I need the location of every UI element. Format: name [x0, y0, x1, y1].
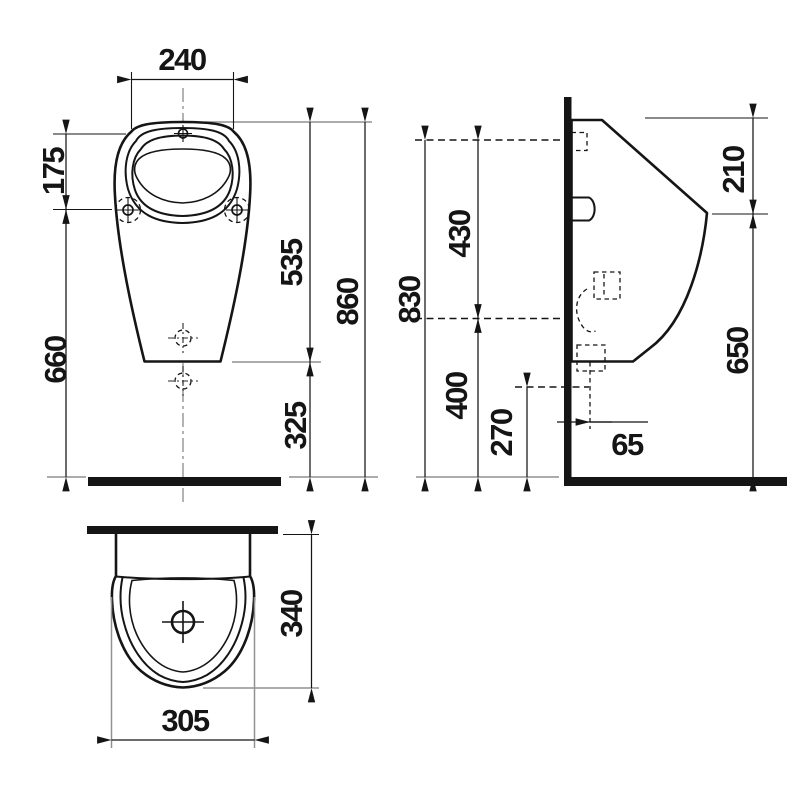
dim-label: 65	[611, 427, 644, 462]
dimension-side-outlet-to-floor: 270	[484, 387, 527, 477]
floor-line	[564, 477, 787, 486]
dimension-front-rim-to-holes: 175	[36, 134, 126, 210]
dimension-side-inlet-height: 830	[392, 140, 427, 477]
front-view: 240 175 660 535 325 860	[36, 42, 378, 506]
dim-label: 535	[274, 238, 309, 286]
dim-label: 830	[392, 276, 427, 323]
dim-label: 660	[38, 336, 73, 383]
dimension-front-base-to-floor: 325	[278, 362, 313, 477]
dimension-side-lip-to-floor: 650	[720, 214, 755, 477]
side-view: 830 430 400 270 210 650	[392, 97, 787, 486]
floor-line	[88, 477, 281, 486]
dimension-front-rim-to-base: 535	[274, 122, 310, 362]
wall-section	[87, 526, 278, 534]
urinal-side-profile	[572, 120, 708, 362]
dimension-side-trap-to-floor: 400	[439, 319, 478, 478]
dim-label: 325	[278, 401, 313, 449]
dimension-side-inlet-to-trap: 430	[442, 140, 478, 319]
dim-label: 270	[484, 409, 519, 456]
dim-label: 430	[442, 210, 477, 257]
dim-label: 210	[716, 146, 751, 193]
drawing-canvas: 240 175 660 535 325 860	[0, 0, 800, 800]
dim-label: 305	[161, 703, 209, 738]
dim-label: 860	[330, 278, 365, 325]
dim-label: 240	[158, 42, 205, 77]
dim-label: 340	[274, 590, 309, 637]
dim-label: 400	[439, 372, 474, 419]
dimension-front-overall-height: 860	[330, 122, 365, 477]
dimension-front-holes-to-floor: 660	[38, 210, 73, 478]
plan-view: 340 305	[87, 526, 319, 748]
dim-label: 650	[720, 327, 755, 374]
urinal-technical-drawing: 240 175 660 535 325 860	[0, 0, 800, 800]
dim-label: 175	[36, 147, 71, 195]
